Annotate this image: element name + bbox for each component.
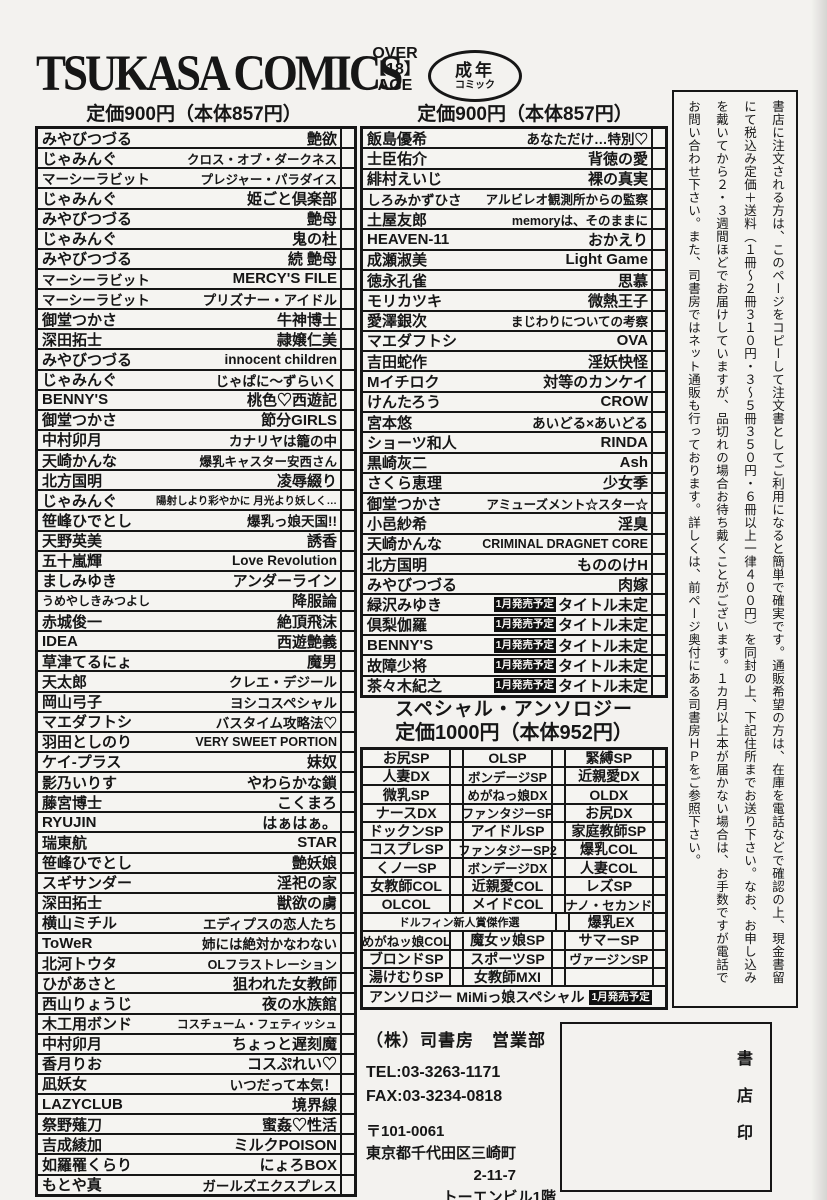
order-check-cell	[551, 969, 564, 985]
order-check-cell	[340, 974, 354, 992]
order-check-cell	[651, 535, 665, 553]
book-title: こくまろ	[104, 792, 340, 813]
anthology-cell: めがねっ娘DX	[462, 786, 550, 802]
bookstore-stamp-box: 書店印	[560, 1022, 772, 1192]
anthology-cell: OLSP	[462, 750, 550, 766]
author-name: みやびつづる	[363, 574, 459, 595]
author-name: 吉成綾加	[38, 1134, 104, 1155]
order-check-cell	[651, 149, 665, 167]
book-title-text: 裸の真実	[588, 168, 648, 189]
order-check-cell	[651, 129, 665, 147]
list-item: 影乃いりすやわらかな鎖	[38, 773, 354, 793]
order-check-cell	[340, 773, 354, 791]
publisher-fax: FAX:03-3234-0818	[366, 1085, 558, 1109]
book-title: 妹奴	[123, 751, 340, 772]
book-title-text: 魔男	[307, 651, 337, 672]
order-check-cell	[449, 750, 462, 766]
author-name: 倶梨伽羅	[363, 614, 429, 635]
author-name: 成瀬淑美	[363, 249, 429, 270]
catalog-page: TSUKASA COMICS OVER 【18】 AGE 成年 コミック 定価9…	[0, 0, 827, 1200]
book-title-text: 獣欲の虜	[277, 892, 337, 913]
book-title-text: 夜の水族館	[262, 993, 337, 1014]
author-name: 飯島優希	[363, 128, 429, 149]
order-check-cell	[449, 896, 462, 912]
list-item: 故障少将1月発売予定タイトル未定	[363, 656, 665, 676]
list-item: 天野英美誘香	[38, 532, 354, 552]
book-title-text: 淫臭	[618, 513, 648, 534]
book-title: 鬼の杜	[119, 228, 340, 249]
order-check-cell	[340, 310, 354, 328]
order-check-cell	[651, 230, 665, 248]
book-title-text: 続 艶母	[288, 248, 337, 269]
anthology-cell: アイドルSP	[462, 823, 550, 839]
author-name: マエダフトシ	[363, 330, 459, 351]
book-title-text: アミューズメント☆スター☆	[486, 494, 648, 513]
book-title-text: CRIMINAL DRAGNET CORE	[482, 537, 648, 551]
order-check-cell	[551, 768, 564, 784]
book-title: アンダーライン	[119, 570, 340, 591]
list-item: うめやしきみつよし降服論	[38, 592, 354, 612]
list-item: 瑞東航STAR	[38, 833, 354, 853]
book-title-text: タイトル未定	[558, 655, 648, 676]
book-title: Light Game	[429, 251, 651, 268]
order-check-cell	[449, 951, 462, 967]
book-title-text: OVA	[617, 332, 648, 349]
book-title-text: 淫祀の家	[277, 872, 337, 893]
book-title-text: 艶欲	[307, 128, 337, 149]
order-check-cell	[340, 672, 354, 690]
anthology-cell: 近親愛DX	[564, 768, 652, 784]
book-title: 1月発売予定タイトル未定	[444, 675, 651, 696]
list-item: 天太郎クレエ・デジール	[38, 672, 354, 692]
order-check-cell	[340, 330, 354, 348]
order-check-cell	[651, 413, 665, 431]
order-check-cell	[340, 230, 354, 248]
list-item: 西山りょうじ夜の水族館	[38, 994, 354, 1014]
order-instructions: 書店に注文される方は、このページをコピーして注文書としてご利用になると簡単で確実…	[672, 90, 798, 1008]
author-name: RYUJIN	[38, 814, 98, 831]
list-item: じゃみんぐクロス・オブ・ダークネス	[38, 149, 354, 169]
author-name: 御堂つかさ	[38, 309, 119, 330]
list-item: じゃみんぐじゃぱに～ずらいく	[38, 371, 354, 391]
book-title-text: 陽射しより彩やかに 月光より妖しく…	[156, 493, 337, 508]
book-title-text: タイトル未定	[558, 594, 648, 615]
book-title-text: Light Game	[565, 251, 648, 268]
order-check-cell	[340, 1075, 354, 1093]
publisher-address-line: 2-11-7	[366, 1165, 558, 1187]
book-title: Ash	[429, 454, 651, 471]
list-item: 御堂つかさ牛神博士	[38, 310, 354, 330]
order-check-cell	[651, 332, 665, 350]
author-name: 宮本悠	[363, 412, 414, 433]
anthology-cell: OLDX	[564, 786, 652, 802]
book-title: 爆乳っ娘天国!!	[134, 510, 340, 530]
book-title-text: にょろBOX	[259, 1154, 337, 1175]
list-item: マーシーラビットMERCY'S FILE	[38, 270, 354, 290]
book-title: バスタイム攻略法♡	[134, 712, 340, 732]
order-check-cell	[340, 1135, 354, 1153]
author-name: マーシーラビット	[38, 269, 152, 289]
order-check-cell	[340, 250, 354, 268]
list-item: もとや真ガールズエクスプレス	[38, 1176, 354, 1194]
order-check-cell	[449, 932, 462, 948]
author-name: 凪妖女	[38, 1073, 89, 1094]
book-title-text: 肉嫁	[618, 574, 648, 595]
author-name: 横山ミチル	[38, 912, 119, 933]
adult-badge-text: 成年	[455, 62, 495, 80]
order-check-cell	[340, 1015, 354, 1033]
order-check-cell	[652, 878, 665, 894]
author-name: 御堂つかさ	[363, 493, 444, 514]
order-check-cell	[340, 894, 354, 912]
order-check-cell	[340, 914, 354, 932]
author-name: 徳永孔雀	[363, 270, 429, 291]
order-check-cell	[551, 823, 564, 839]
order-check-cell	[340, 431, 354, 449]
book-title: 艶母	[134, 208, 340, 229]
book-title: はぁはぁ。	[98, 812, 340, 833]
list-item: ましみゆきアンダーライン	[38, 572, 354, 592]
anthology-cell: レズSP	[564, 878, 652, 894]
book-title-text: カナリヤは籠の中	[229, 430, 337, 450]
order-check-cell	[340, 129, 354, 147]
list-item: モリカツキ微熱王子	[363, 291, 665, 311]
book-title-text: memoryは、そのままに	[512, 210, 648, 229]
list-item: マエダフトシバスタイム攻略法♡	[38, 713, 354, 733]
list-item: 中村卯月ちょっと遅刻魔	[38, 1035, 354, 1055]
order-check-cell	[340, 270, 354, 288]
order-check-cell	[651, 656, 665, 674]
book-title-text: 隷嬢仁美	[277, 329, 337, 350]
author-name: BENNY'S	[38, 391, 110, 408]
book-title: MERCY'S FILE	[152, 270, 340, 287]
book-title-text: 狙われた女教師	[233, 973, 337, 994]
book-title: 思慕	[429, 270, 651, 291]
author-name: 天野英美	[38, 530, 104, 551]
book-title: 対等のカンケイ	[442, 371, 652, 392]
list-item: みやびつづる続 艶母	[38, 250, 354, 270]
anthology-cell: ヴァージンSP	[564, 951, 652, 967]
author-name: みやびつづる	[38, 349, 134, 370]
book-title-text: 背徳の愛	[588, 148, 648, 169]
author-name: 草津てるにょ	[38, 651, 134, 672]
order-check-cell	[449, 969, 462, 985]
book-title-text: 桃色♡西遊記	[247, 389, 337, 410]
anthology-cell: コスプレSP	[363, 841, 449, 857]
publisher-tel: TEL:03-3263-1171	[366, 1061, 558, 1085]
anthology-cell: くノ一SP	[363, 859, 449, 875]
book-title-text: タイトル未定	[558, 635, 648, 656]
order-check-cell	[340, 391, 354, 409]
book-title-text: まじわりについての考察	[511, 311, 648, 330]
order-check-cell	[652, 932, 665, 948]
anthology-cell: ドルフィン新人賞傑作選	[363, 914, 555, 930]
order-check-cell	[652, 750, 665, 766]
order-check-cell	[652, 805, 665, 821]
anthology-title: スペシャル・アンソロジー	[360, 699, 668, 721]
order-check-cell	[651, 474, 665, 492]
author-name: 祭野薙刀	[38, 1114, 104, 1135]
author-name: ToWeR	[38, 935, 94, 952]
list-item: 岡山弓子ヨシコスペシャル	[38, 693, 354, 713]
book-title-text: プレジャー・パラダイス	[200, 169, 337, 188]
author-name: マーシーラビット	[38, 168, 152, 188]
anthology-cell: サマーSP	[564, 932, 652, 948]
book-title: おかえり	[451, 229, 651, 250]
author-name: LAZYCLUB	[38, 1096, 125, 1113]
author-name: 木工用ボンド	[38, 1013, 134, 1034]
order-check-cell	[651, 575, 665, 593]
order-check-cell	[652, 896, 665, 912]
book-title: ガールズエクスプレス	[104, 1175, 340, 1195]
author-name: じゃみんぐ	[38, 490, 119, 511]
book-title-text: 妹奴	[307, 751, 337, 772]
order-check-cell	[340, 1155, 354, 1173]
order-check-cell	[340, 632, 354, 650]
author-name: 天太郎	[38, 671, 89, 692]
order-check-cell	[340, 491, 354, 509]
author-name: 藤宮博士	[38, 792, 104, 813]
order-check-cell	[551, 951, 564, 967]
bookstore-stamp-label: 書店印	[730, 1050, 754, 1161]
list-item: しろみかずひさアルビレオ観測所からの監察	[363, 190, 665, 210]
order-check-cell	[340, 874, 354, 892]
book-title: 節分GIRLS	[119, 409, 340, 430]
book-title: 誘香	[104, 530, 340, 551]
order-check-cell	[555, 914, 568, 930]
book-title: アミューズメント☆スター☆	[444, 494, 651, 513]
book-title: RINDA	[459, 434, 651, 451]
anthology-cell: 爆乳EX	[568, 914, 652, 930]
book-title-text: VERY SWEET PORTION	[195, 735, 337, 749]
author-name: マーシーラビット	[38, 289, 152, 309]
book-title-text: 爆乳っ娘天国!!	[247, 510, 337, 530]
list-item: 如羅罹くらりにょろBOX	[38, 1155, 354, 1175]
author-name: 愛澤銀次	[363, 310, 429, 331]
book-title-text: OLフラストレーション	[208, 954, 337, 973]
publisher-name: （株）司書房 営業部	[366, 1026, 558, 1051]
author-name: 如羅罹くらり	[38, 1154, 134, 1175]
list-item: みやびつづる肉嫁	[363, 575, 665, 595]
release-badge: 1月発売予定	[494, 638, 556, 653]
order-check-cell	[551, 786, 564, 802]
author-name: 御堂つかさ	[38, 409, 119, 430]
book-title: カナリヤは籠の中	[104, 430, 340, 450]
book-title: にょろBOX	[134, 1154, 340, 1175]
book-title: プレジャー・パラダイス	[152, 169, 340, 188]
author-name: 笹峰ひでとし	[38, 510, 134, 531]
list-item: みやびつづる艶母	[38, 210, 354, 230]
author-name: ケイ-プラス	[38, 751, 123, 772]
author-name: しろみかずひさ	[363, 189, 464, 209]
book-title-text: Ash	[620, 454, 648, 471]
order-check-cell	[340, 471, 354, 489]
book-title-text: ミルクPOISON	[234, 1134, 337, 1155]
list-item: マーシーラビットプレジャー・パラダイス	[38, 169, 354, 189]
book-title-text: 誘香	[307, 530, 337, 551]
order-check-cell	[340, 612, 354, 630]
book-title-text: 微熱王子	[588, 290, 648, 311]
book-title: 背徳の愛	[429, 148, 651, 169]
book-title: 牛神博士	[119, 309, 340, 330]
order-check-cell	[340, 793, 354, 811]
book-title-text: ガールズエクスプレス	[202, 1175, 337, 1195]
order-check-cell	[651, 616, 665, 634]
list-item: じゃみんぐ陽射しより彩やかに 月光より妖しく…	[38, 491, 354, 511]
list-item: スギサンダー淫祀の家	[38, 874, 354, 894]
order-check-cell	[340, 1055, 354, 1073]
adult-comic-badge: 成年 コミック	[428, 50, 522, 102]
author-name: 故障少将	[363, 655, 429, 676]
list-item: IDEA西遊艶義	[38, 632, 354, 652]
anthology-cell: 魔女ッ娘SP	[462, 932, 550, 948]
anthology-cell: 人妻COL	[564, 859, 652, 875]
anthology-special-row: アンソロジー MiMiっ娘スペシャル1月発売予定	[363, 987, 665, 1007]
order-check-cell	[340, 833, 354, 851]
anthology-cell: ファンタジーSP	[462, 805, 550, 821]
book-title: 裸の真実	[444, 168, 651, 189]
order-check-cell	[340, 934, 354, 952]
list-item: 笹峰ひでとし艶妖娘	[38, 854, 354, 874]
book-title-text: 節分GIRLS	[261, 409, 337, 430]
book-title-text: 絶頂飛沫	[277, 611, 337, 632]
book-title-text: クレエ・デジール	[229, 671, 337, 691]
book-title-text: アンダーライン	[233, 570, 337, 591]
publisher-info: （株）司書房 営業部 TEL:03-3263-1171 FAX:03-3234-…	[366, 1026, 558, 1200]
publisher-address-line: 東京都千代田区三崎町	[366, 1143, 558, 1165]
author-name: 黒崎灰二	[363, 452, 429, 473]
order-check-cell	[651, 595, 665, 613]
list-item: 宮本悠あいどる×あいどる	[363, 413, 665, 433]
author-name: もとや真	[38, 1174, 104, 1195]
anthology-cell: ドックンSP	[363, 823, 449, 839]
book-title: 微熱王子	[444, 290, 651, 311]
list-item: 天崎かんな爆乳キャスター安西さん	[38, 451, 354, 471]
order-check-cell	[340, 954, 354, 972]
author-name: 深田拓士	[38, 329, 104, 350]
book-title-text: RINDA	[601, 434, 649, 451]
book-title: 姉には絶対かなわない	[94, 933, 340, 953]
author-name: IDEA	[38, 633, 80, 650]
anthology-cell: お尻SP	[363, 750, 449, 766]
release-badge: 1月発売予定	[494, 678, 556, 693]
list-item: 赤城俊一絶頂飛沫	[38, 612, 354, 632]
book-title-text: CROW	[601, 393, 649, 410]
order-check-cell	[340, 552, 354, 570]
book-title-text: 少女季	[603, 472, 648, 493]
book-title-text: Love Revolution	[232, 553, 337, 568]
book-title: STAR	[89, 834, 340, 851]
list-item: 吉田蛇作淫妖快怪	[363, 352, 665, 372]
list-item: 草津てるにょ魔男	[38, 652, 354, 672]
list-item: 藤宮博士こくまろ	[38, 793, 354, 813]
book-title-text: コスぷれい♡	[247, 1053, 337, 1074]
book-title-text: 爆乳キャスター安西さん	[199, 451, 337, 470]
book-title-text: 凌辱綴り	[277, 470, 337, 491]
order-check-cell	[551, 805, 564, 821]
book-title-text: MERCY'S FILE	[233, 270, 337, 287]
book-title-text: 思慕	[618, 270, 648, 291]
book-title-text: 淫妖快怪	[588, 351, 648, 372]
anthology-special-label: アンソロジー MiMiっ娘スペシャル	[369, 987, 584, 1007]
author-name: 羽田としのり	[38, 731, 134, 752]
book-title: 狙われた女教師	[119, 973, 340, 994]
book-title-text: もののけH	[577, 554, 648, 575]
author-name: スギサンダー	[38, 872, 134, 893]
book-title: 1月発売予定タイトル未定	[435, 635, 651, 656]
order-check-cell	[340, 693, 354, 711]
anthology-cell: スポーツSP	[462, 951, 550, 967]
order-check-cell	[652, 969, 665, 985]
order-check-cell	[651, 291, 665, 309]
author-name: 茶々木紀之	[363, 675, 444, 696]
order-check-cell	[340, 451, 354, 469]
book-title: 絶頂飛沫	[104, 611, 340, 632]
author-name: 中村卯月	[38, 1033, 104, 1054]
book-title: もののけH	[429, 554, 651, 575]
list-item: 緋村えいじ裸の真実	[363, 170, 665, 190]
book-title-text: 艶妖娘	[292, 852, 337, 873]
order-check-cell	[551, 896, 564, 912]
author-name: 五十嵐輝	[38, 550, 104, 571]
order-check-cell	[340, 652, 354, 670]
list-item: さくら恵理少女季	[363, 474, 665, 494]
book-title-text: こくまろ	[277, 792, 337, 813]
book-title-text: エディプスの恋人たち	[203, 913, 337, 933]
order-check-cell	[340, 290, 354, 308]
book-title-text: 牛神博士	[277, 309, 337, 330]
author-name: BENNY'S	[363, 637, 435, 654]
right-title-list: 飯島優希あなただけ…特別♡士臣佑介背徳の愛緋村えいじ裸の真実しろみかずひさアルビ…	[360, 126, 668, 698]
book-title: 爆乳キャスター安西さん	[119, 451, 340, 470]
anthology-cell: お尻DX	[564, 805, 652, 821]
book-title: 淫妖快怪	[429, 351, 651, 372]
book-title-text: 姉には絶対かなわない	[202, 933, 337, 953]
order-check-cell	[340, 813, 354, 831]
book-title: 陽射しより彩やかに 月光より妖しく…	[119, 493, 340, 508]
author-name: じゃみんぐ	[38, 228, 119, 249]
book-title: CRIMINAL DRAGNET CORE	[444, 537, 651, 551]
order-instructions-column: 書店に注文される方は、このページをコピーして注文書としてご利用になると簡単で確実…	[763, 100, 791, 998]
list-item: 凪妖女いつだって本気！	[38, 1075, 354, 1095]
order-check-cell	[340, 854, 354, 872]
order-check-cell	[652, 859, 665, 875]
author-name: 北方国明	[363, 554, 429, 575]
release-badge: 1月発売予定	[494, 658, 556, 673]
book-title: ちょっと遅刻魔	[104, 1033, 340, 1054]
author-name: 北河トウタ	[38, 953, 119, 974]
order-check-cell	[651, 251, 665, 269]
order-check-cell	[340, 1095, 354, 1113]
book-title: 淫祀の家	[134, 872, 340, 893]
book-title: エディプスの恋人たち	[119, 913, 340, 933]
list-item: LAZYCLUB境界線	[38, 1095, 354, 1115]
list-item: ケイ-プラス妹奴	[38, 753, 354, 773]
order-check-cell	[551, 841, 564, 857]
order-check-cell	[340, 532, 354, 550]
list-item: RYUJINはぁはぁ。	[38, 813, 354, 833]
book-title-text: あいどる×あいどる	[532, 412, 648, 432]
author-name: 中村卯月	[38, 429, 104, 450]
left-title-list: みやびつづる艶欲じゃみんぐクロス・オブ・ダークネスマーシーラビットプレジャー・パ…	[35, 126, 357, 1197]
order-check-cell	[340, 713, 354, 731]
book-title: innocent children	[134, 352, 340, 367]
book-title-text: あなただけ…特別♡	[527, 128, 649, 148]
book-title: 1月発売予定タイトル未定	[429, 655, 651, 676]
order-check-cell	[340, 350, 354, 368]
list-item: けんたろうCROW	[363, 393, 665, 413]
author-name: 士臣佑介	[363, 148, 429, 169]
